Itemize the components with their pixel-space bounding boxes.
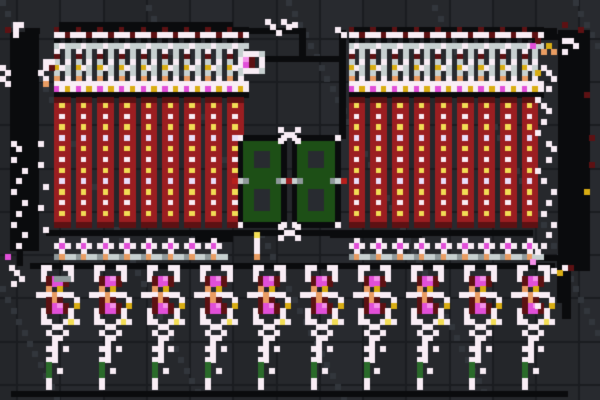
redstone-circuit-canvas bbox=[0, 0, 600, 400]
redstone-simulator-screenshot bbox=[0, 0, 600, 400]
